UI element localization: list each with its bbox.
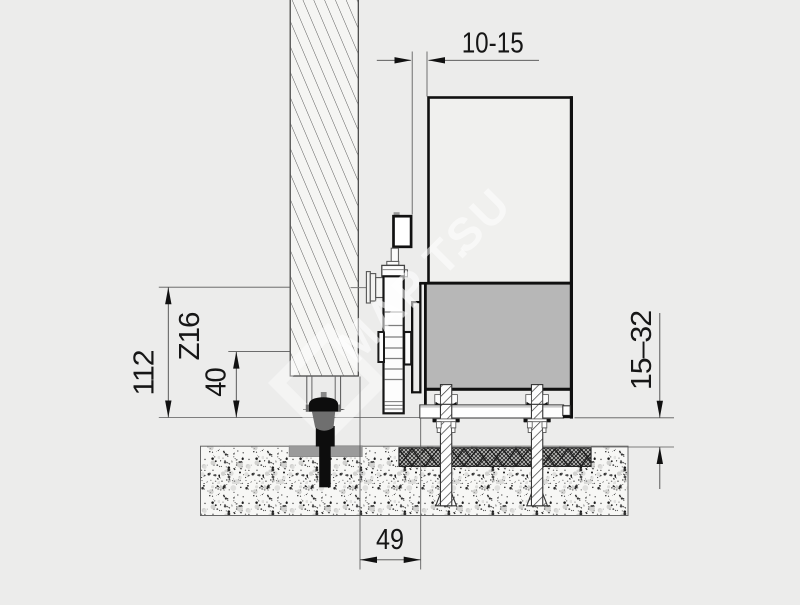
svg-text:49: 49 [376, 524, 404, 556]
svg-text:10-15: 10-15 [462, 28, 524, 60]
svg-text:Z16: Z16 [174, 313, 206, 361]
svg-text:15–32: 15–32 [626, 311, 658, 390]
svg-text:40: 40 [201, 368, 233, 397]
svg-text:112: 112 [129, 351, 161, 396]
